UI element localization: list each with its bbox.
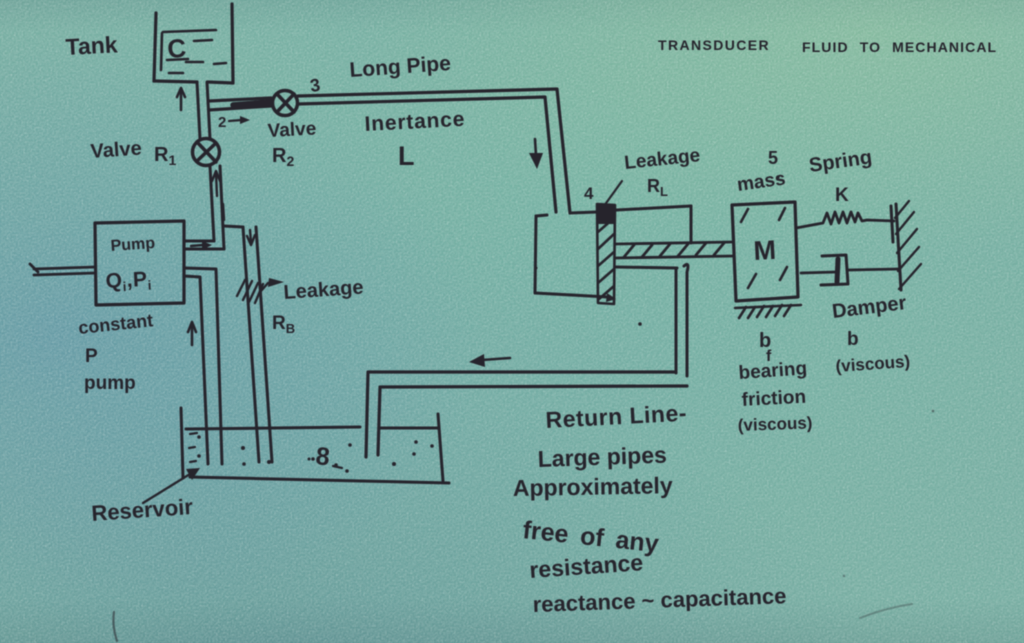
svg-text:Valve: Valve <box>90 137 143 163</box>
svg-text:TRANSDUCER: TRANSDUCER <box>658 37 770 53</box>
svg-text:5: 5 <box>768 148 778 168</box>
svg-text:K: K <box>835 185 849 206</box>
svg-text:C: C <box>166 33 187 64</box>
svg-text:L: L <box>398 141 415 171</box>
svg-text:M: M <box>753 235 777 266</box>
svg-text:Qi,Pi: Qi,Pi <box>105 268 152 295</box>
svg-text:Tank: Tank <box>65 31 118 60</box>
svg-text:2: 2 <box>218 114 226 131</box>
svg-text:b: b <box>847 329 859 350</box>
svg-text:P: P <box>85 346 98 367</box>
svg-text:Large pipes: Large pipes <box>537 442 667 472</box>
svg-text:(viscous): (viscous) <box>737 413 812 435</box>
svg-text:Pump: Pump <box>110 235 156 255</box>
svg-text:friction: friction <box>741 387 806 411</box>
svg-text:Approximately: Approximately <box>513 472 673 501</box>
svg-text:Valve: Valve <box>267 118 317 142</box>
svg-text:pump: pump <box>84 373 136 394</box>
svg-text:FLUID TO MECHANICAL: FLUID TO MECHANICAL <box>802 39 997 55</box>
svg-text:4: 4 <box>584 184 594 203</box>
